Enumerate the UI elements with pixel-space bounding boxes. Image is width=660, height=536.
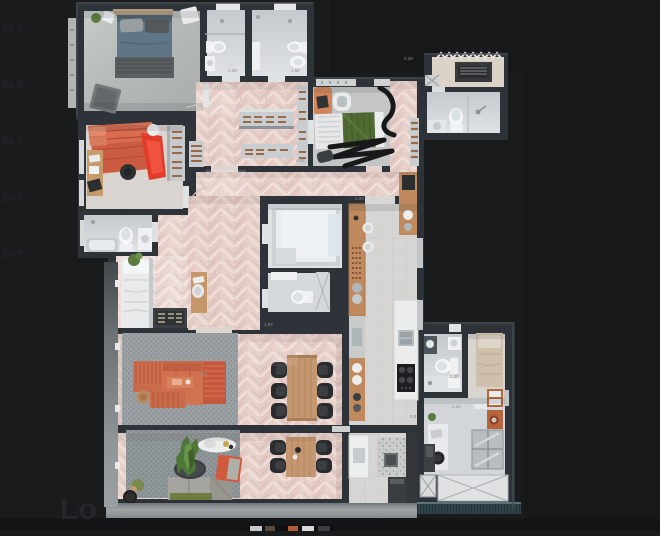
svg-text:1.20: 1.20 (450, 374, 459, 379)
svg-text:Lo: Lo (60, 493, 97, 526)
svg-text:0.8: 0.8 (410, 414, 417, 419)
svg-text:ão 9: ão 9 (2, 248, 23, 260)
svg-text:ão 5: ão 5 (2, 22, 23, 34)
svg-text:ão 8: ão 8 (2, 192, 23, 204)
svg-text:2.26: 2.26 (404, 56, 413, 61)
svg-text:2.26: 2.26 (355, 196, 364, 201)
svg-text:1.86: 1.86 (264, 322, 273, 327)
svg-text:1.30: 1.30 (228, 68, 237, 73)
svg-text:ão 6: ão 6 (2, 79, 23, 91)
svg-text:10 m: 10 m (138, 493, 148, 498)
svg-text:4.06: 4.06 (296, 158, 305, 163)
svg-text:1.34: 1.34 (452, 404, 461, 409)
svg-text:ão 7: ão 7 (2, 135, 23, 147)
svg-text:1.80: 1.80 (199, 372, 208, 377)
svg-text:1.60: 1.60 (291, 68, 300, 73)
